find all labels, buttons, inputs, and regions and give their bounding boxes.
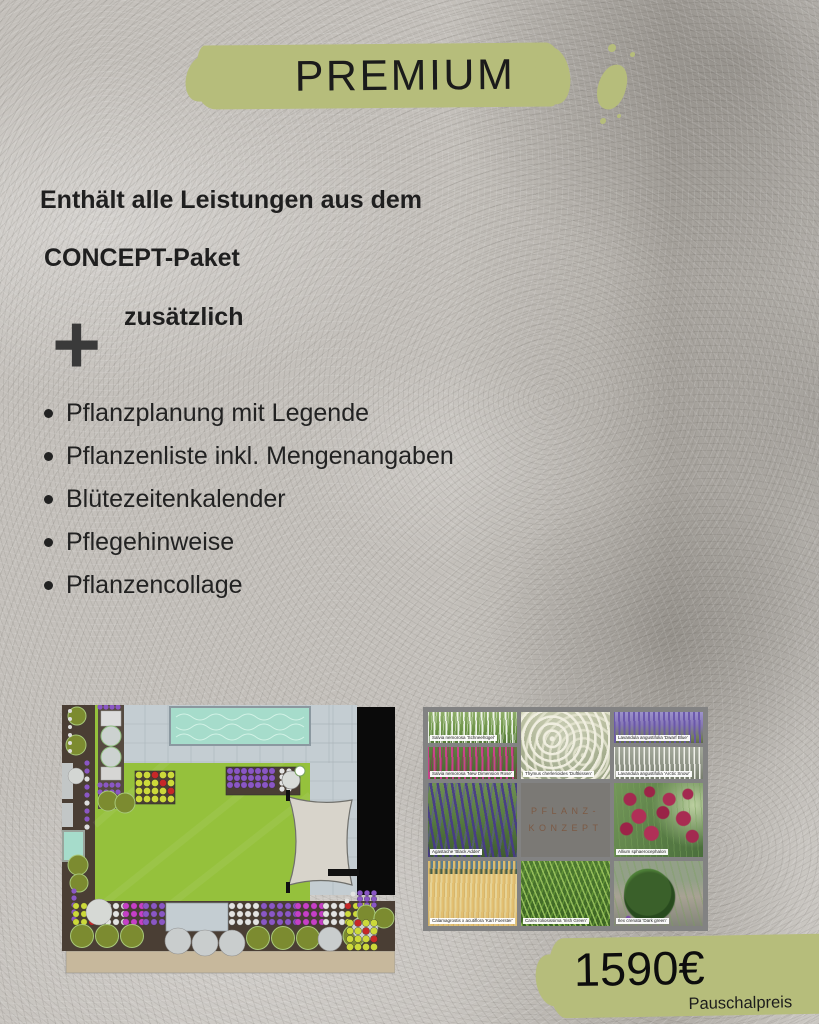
page-title: PREMIUM xyxy=(295,50,516,101)
paint-splatter xyxy=(630,52,635,57)
plant-label: Lavandula angustifolia 'Dwarf Blue' xyxy=(616,735,690,741)
paint-splatter xyxy=(608,44,616,52)
pflanz-konzept-title-line2: KONZEPT xyxy=(528,820,602,837)
feature-item: Pflegehinweise xyxy=(40,521,454,564)
plant-label: Salvia nemorosa 'New Dimension Rose' xyxy=(430,771,514,777)
photo-lavender-arctic-snow: Lavandula angustifolia 'Arctic Snow' xyxy=(614,747,703,779)
plan-building xyxy=(357,707,395,895)
paint-splatter xyxy=(594,62,631,113)
garden-plan-image xyxy=(62,705,395,975)
photo-salvia-pink: Salvia nemorosa 'New Dimension Rose' xyxy=(428,747,517,779)
plan-step-paving xyxy=(166,903,228,931)
feature-item: Pflanzplanung mit Legende xyxy=(40,392,454,435)
plant-label: Agastache 'Black Adder' xyxy=(430,849,482,855)
additional-label: zusätzlich xyxy=(124,303,243,332)
intro-line-2: CONCEPT-Paket xyxy=(44,244,240,273)
intro-line-1: Enthält alle Leistungen aus dem xyxy=(40,186,422,215)
photo-agastache: Agastache 'Black Adder' xyxy=(428,783,517,857)
price-text: 1590€ xyxy=(573,940,705,997)
photo-allium: Allium sphaerocephalon xyxy=(614,783,703,857)
feature-item: Pflanzenliste inkl. Mengenangaben xyxy=(40,435,454,478)
photo-thymus: Thymus cherlerioides 'Duftkissen' xyxy=(521,712,610,779)
plant-label: Lavandula angustifolia 'Arctic Snow' xyxy=(616,771,692,777)
plant-label: Salvia nemorosa 'Schneehügel' xyxy=(430,735,497,741)
photo-calamagrostis: Calamagrostis x acutiflora 'Karl Foerste… xyxy=(428,861,517,926)
pflanz-konzept-tile: PFLANZ- KONZEPT xyxy=(521,783,610,857)
plant-collage: Salvia nemorosa 'Schneehügel' Salvia nem… xyxy=(423,707,708,931)
photo-carex: Carex foliosissima 'Irish Green' xyxy=(521,861,610,926)
features-list: Pflanzplanung mit Legende Pflanzenliste … xyxy=(40,392,454,607)
paint-splatter xyxy=(600,118,606,124)
paint-splatter xyxy=(617,114,621,118)
feature-item: Pflanzencollage xyxy=(40,564,454,607)
plant-label: Ilex crenata 'Dark green' xyxy=(616,918,669,924)
photo-ilex: Ilex crenata 'Dark green' xyxy=(614,861,703,926)
pflanz-konzept-title-line1: PFLANZ- xyxy=(531,803,600,820)
photo-lavender-dwarf-blue: Lavandula angustifolia 'Dwarf Blue' xyxy=(614,712,703,743)
premium-title-brush: PREMIUM xyxy=(196,42,563,109)
plus-sign: + xyxy=(52,304,101,384)
plant-label: Calamagrostis x acutiflora 'Karl Foerste… xyxy=(430,918,515,924)
premium-package-flyer: { "header": { "title": "PREMIUM" }, "int… xyxy=(0,0,819,1024)
price-brush: 1590€ Pauschalpreis xyxy=(547,934,819,1019)
plant-label: Thymus cherlerioides 'Duftkissen' xyxy=(523,771,594,777)
plan-planter xyxy=(62,803,73,827)
feature-item: Blütezeitenkalender xyxy=(40,478,454,521)
price-note: Pauschalpreis xyxy=(688,993,792,1014)
photo-salvia-white: Salvia nemorosa 'Schneehügel' xyxy=(428,712,517,743)
plant-label: Allium sphaerocephalon xyxy=(616,849,668,855)
plant-label: Carex foliosissima 'Irish Green' xyxy=(523,918,589,924)
